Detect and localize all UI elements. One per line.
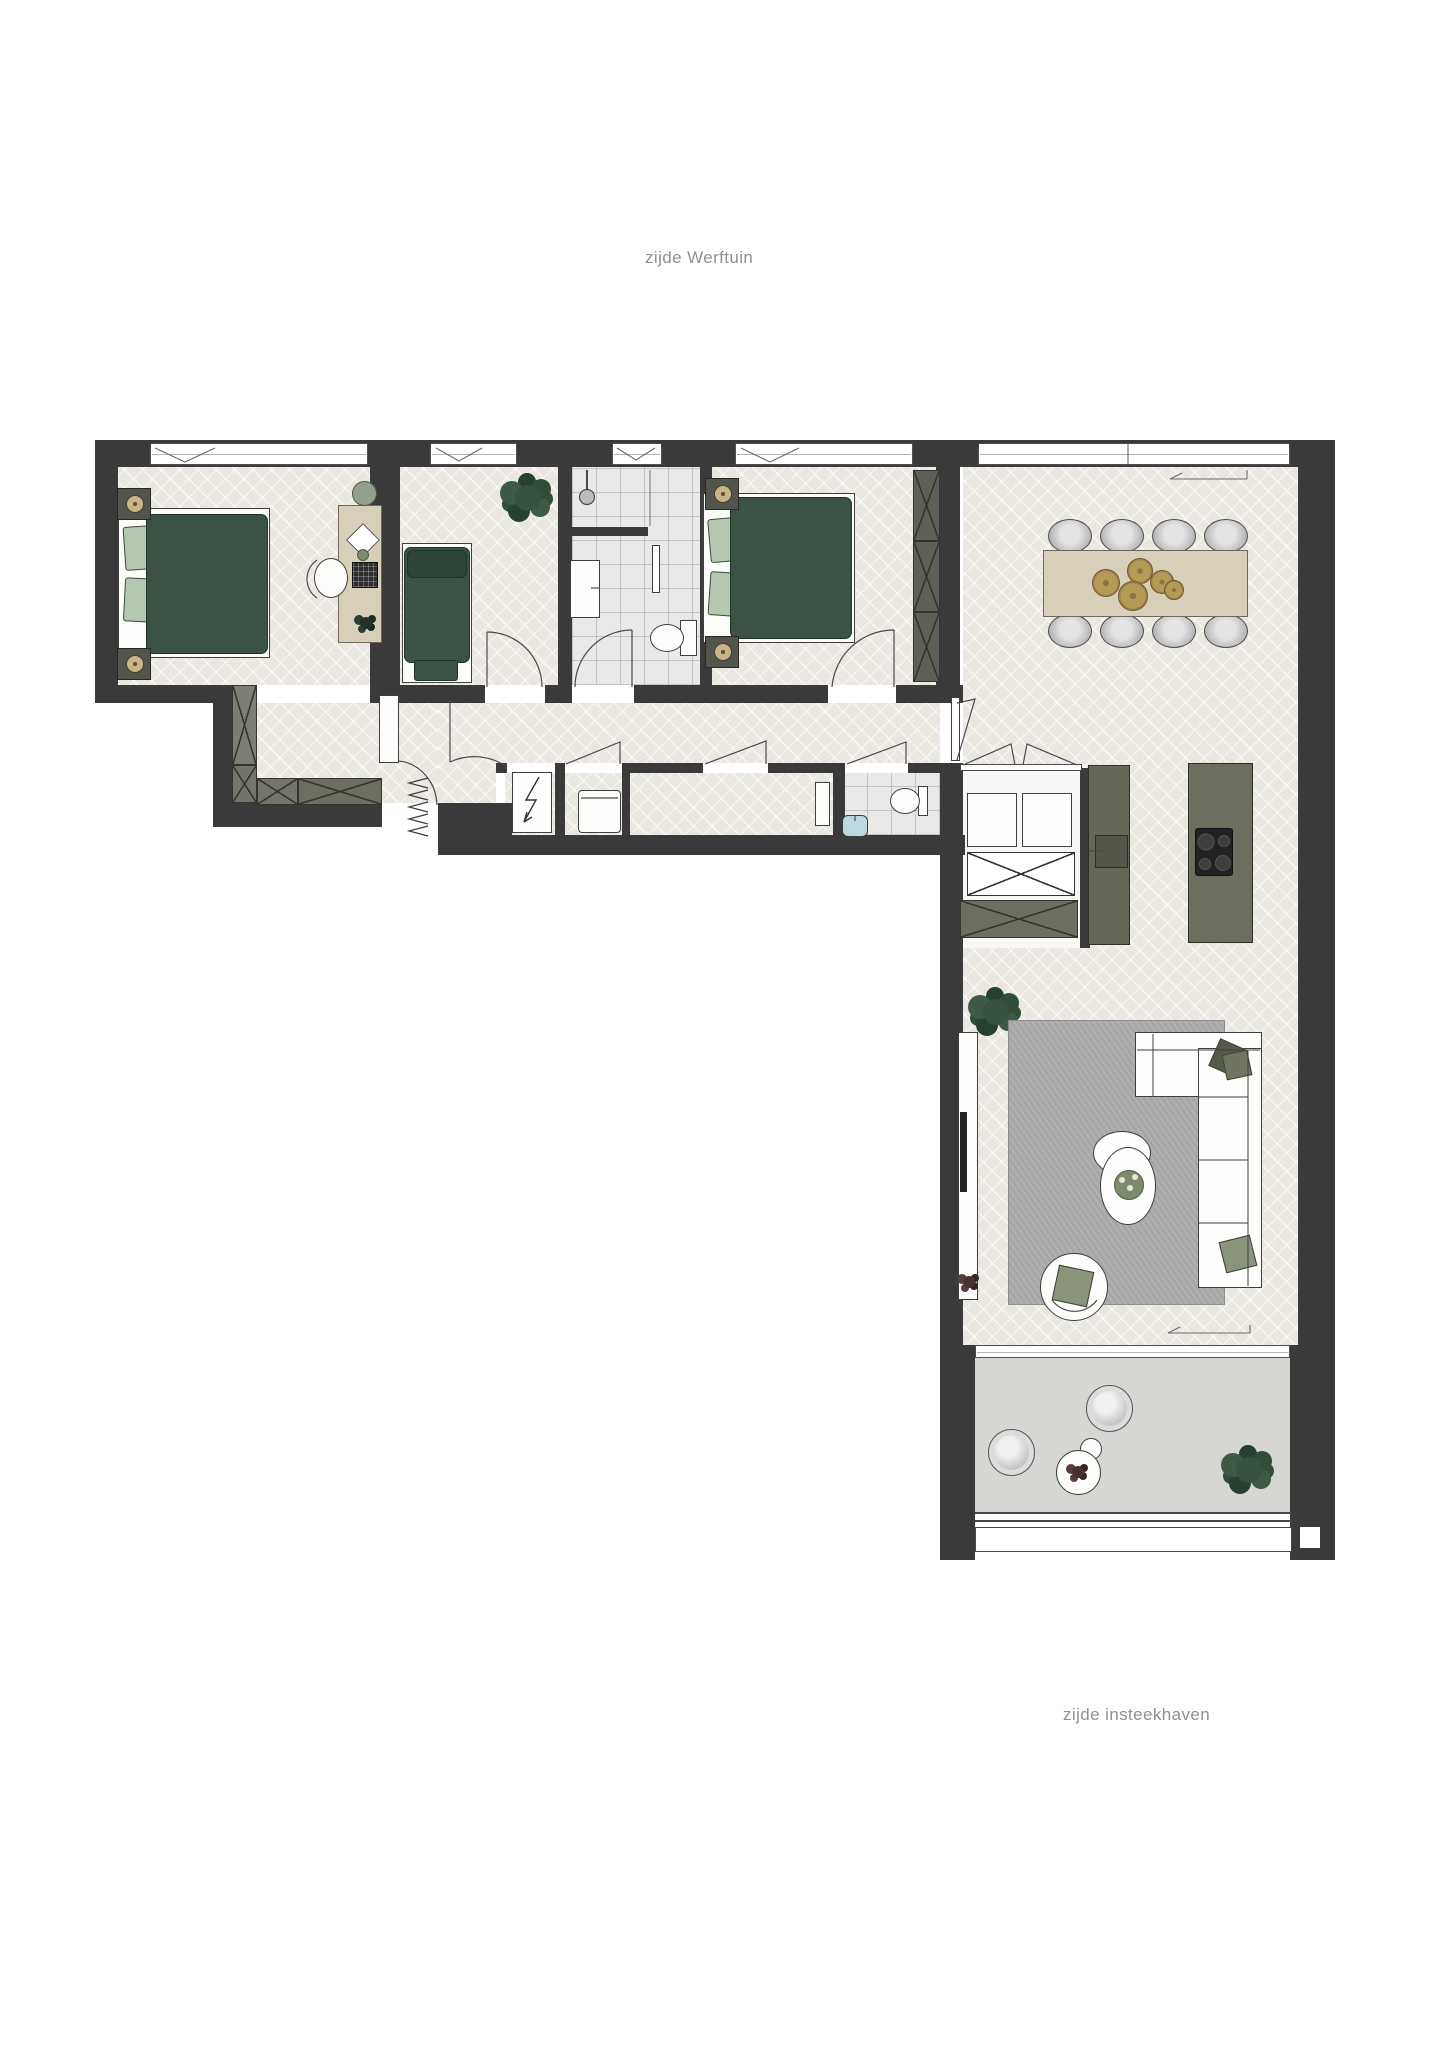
fixture-details — [307, 560, 1105, 1311]
cooktop-burners — [1198, 834, 1231, 871]
linework-overlay — [0, 0, 1448, 2048]
floorplan: zijde Werftuin zijde insteekhaven — [0, 0, 1448, 2048]
shower-head-icon — [580, 470, 651, 526]
coat-hooks-icon — [409, 778, 428, 836]
window-opening-marks — [155, 444, 1250, 1333]
door-swings — [399, 630, 1077, 805]
tray-decor — [1119, 1174, 1138, 1191]
sofa-seams — [1137, 1034, 1260, 1286]
lightning-icon — [524, 777, 539, 822]
